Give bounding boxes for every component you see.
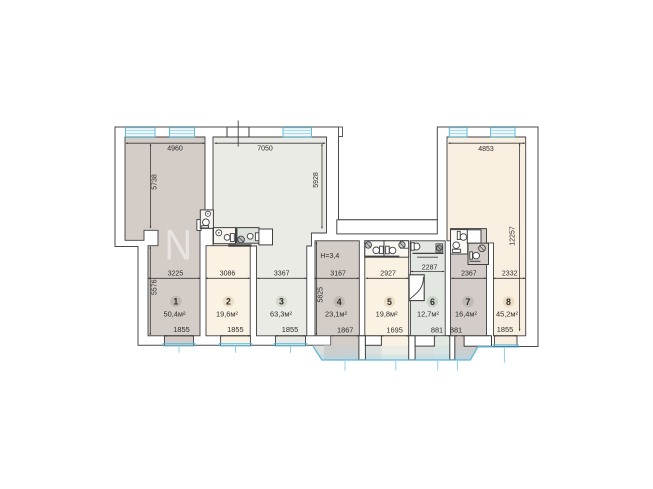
svg-text:2332: 2332: [502, 271, 518, 278]
svg-text:1855: 1855: [497, 325, 513, 334]
svg-text:3: 3: [279, 297, 284, 307]
svg-text:5825: 5825: [317, 287, 324, 303]
svg-text:3225: 3225: [168, 271, 184, 278]
svg-text:2927: 2927: [380, 271, 396, 278]
svg-text:1855: 1855: [173, 325, 189, 334]
svg-text:3167: 3167: [330, 271, 346, 278]
svg-text:5576: 5576: [152, 279, 159, 295]
svg-text:7050: 7050: [257, 146, 273, 153]
svg-text:50,4м²: 50,4м²: [164, 310, 186, 319]
svg-text:12257: 12257: [509, 226, 516, 246]
svg-text:881: 881: [431, 326, 443, 335]
svg-text:1855: 1855: [227, 325, 243, 334]
svg-text:7: 7: [466, 297, 471, 307]
svg-text:45,2м²: 45,2м²: [496, 310, 518, 319]
svg-text:6: 6: [430, 297, 435, 307]
svg-text:3086: 3086: [220, 271, 236, 278]
svg-text:2287: 2287: [422, 265, 438, 272]
svg-text:19,8м²: 19,8м²: [376, 310, 398, 319]
svg-text:1695: 1695: [386, 326, 402, 335]
svg-text:4: 4: [337, 297, 342, 307]
svg-text:19,6м²: 19,6м²: [216, 310, 238, 319]
svg-text:4853: 4853: [478, 146, 494, 153]
svg-text:16,4м²: 16,4м²: [455, 310, 477, 319]
svg-text:3367: 3367: [274, 271, 290, 278]
svg-text:12,7м²: 12,7м²: [417, 310, 439, 319]
svg-text:881: 881: [450, 326, 462, 335]
svg-text:1: 1: [173, 297, 178, 307]
svg-text:H=3,4: H=3,4: [320, 253, 339, 260]
svg-text:63,3м²: 63,3м²: [270, 310, 292, 319]
svg-text:5738: 5738: [152, 174, 159, 190]
svg-text:23,1м²: 23,1м²: [325, 310, 347, 319]
svg-text:N: N: [165, 221, 193, 269]
svg-text:5928: 5928: [313, 172, 320, 188]
svg-text:1867: 1867: [337, 326, 353, 335]
svg-text:1855: 1855: [282, 325, 298, 334]
svg-text:8: 8: [506, 297, 511, 307]
svg-text:2367: 2367: [461, 271, 477, 278]
svg-text:2: 2: [226, 297, 231, 307]
svg-text:5: 5: [387, 297, 392, 307]
svg-text:4960: 4960: [167, 146, 183, 153]
